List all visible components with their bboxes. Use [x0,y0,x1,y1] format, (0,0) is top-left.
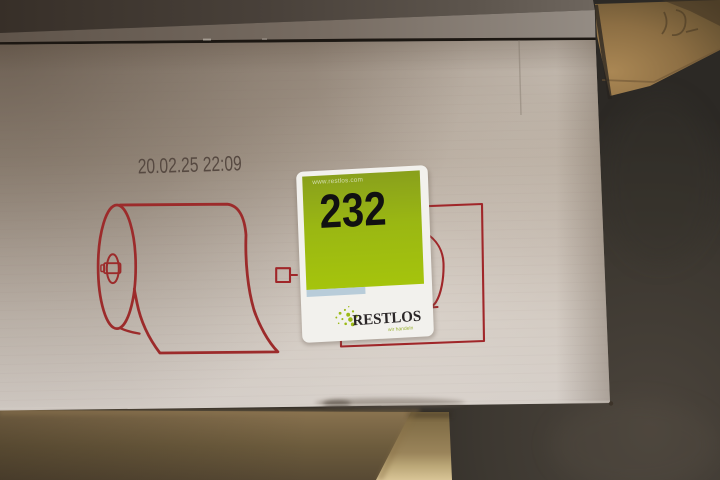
svg-text:20.02.25 22:09: 20.02.25 22:09 [137,152,242,178]
svg-text:232: 232 [318,183,387,239]
